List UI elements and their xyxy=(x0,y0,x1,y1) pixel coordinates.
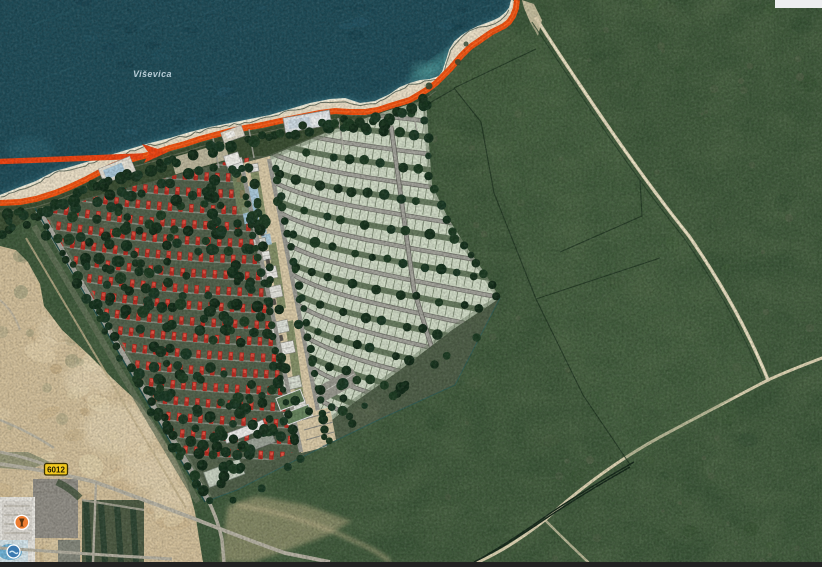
svg-text:Viševica: Viševica xyxy=(133,69,172,79)
svg-text:6012: 6012 xyxy=(47,466,65,475)
